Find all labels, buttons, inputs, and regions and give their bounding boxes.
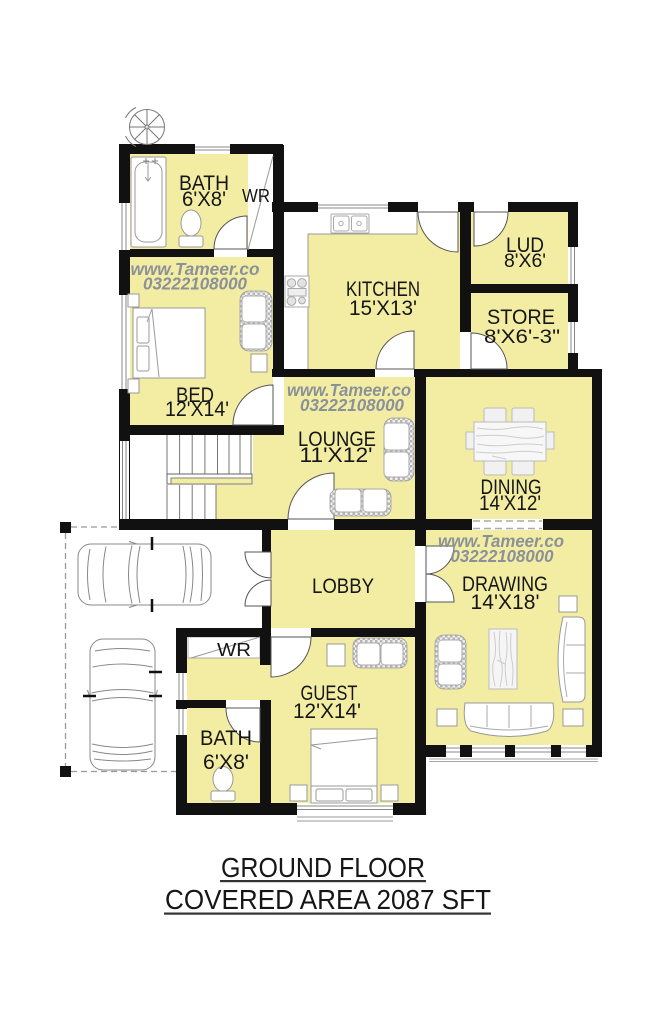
svg-text:03222108000: 03222108000 (451, 546, 554, 566)
svg-text:WR: WR (217, 640, 251, 660)
svg-text:15'X13': 15'X13' (349, 297, 417, 320)
svg-text:8'X6': 8'X6' (504, 251, 546, 272)
svg-text:12'X14': 12'X14' (293, 700, 361, 723)
svg-text:8'X6'-3": 8'X6'-3" (484, 327, 560, 348)
svg-text:LOBBY: LOBBY (312, 575, 374, 598)
svg-text:6'X8': 6'X8' (182, 188, 226, 211)
svg-text:COVERED AREA 2087 SFT: COVERED AREA 2087 SFT (165, 884, 491, 915)
svg-text:03222108000: 03222108000 (143, 274, 247, 294)
svg-text:14'X12': 14'X12' (479, 492, 541, 515)
svg-text:12'X14': 12'X14' (165, 398, 229, 421)
svg-text:6'X8': 6'X8' (203, 751, 249, 774)
svg-text:WR: WR (242, 185, 270, 206)
svg-text:14'X18': 14'X18' (471, 591, 540, 614)
svg-text:BATH: BATH (200, 727, 252, 750)
svg-text:03222108000: 03222108000 (300, 395, 404, 415)
svg-text:11'X12': 11'X12' (300, 444, 373, 467)
svg-text:GROUND FLOOR: GROUND FLOOR (221, 852, 425, 883)
svg-text:STORE: STORE (487, 306, 555, 329)
